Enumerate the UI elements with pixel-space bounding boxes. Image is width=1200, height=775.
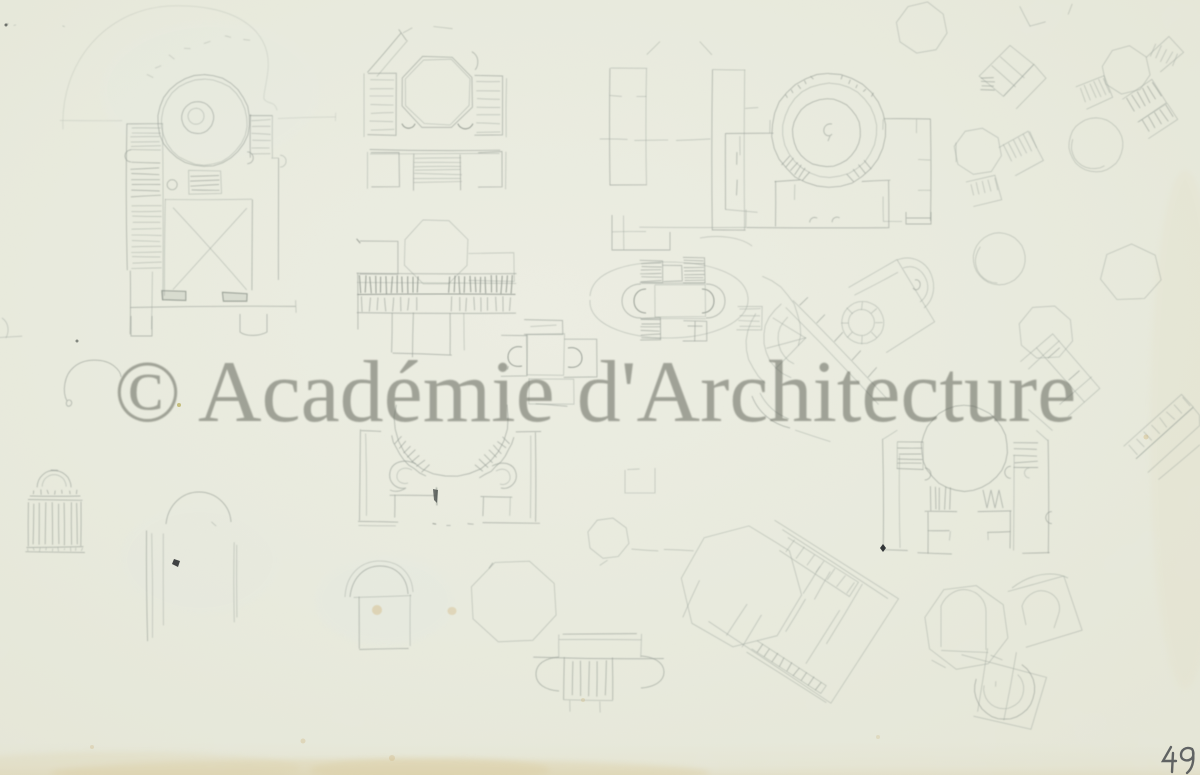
svg-text:© Académie d'Architecture: © Académie d'Architecture xyxy=(114,344,1076,441)
